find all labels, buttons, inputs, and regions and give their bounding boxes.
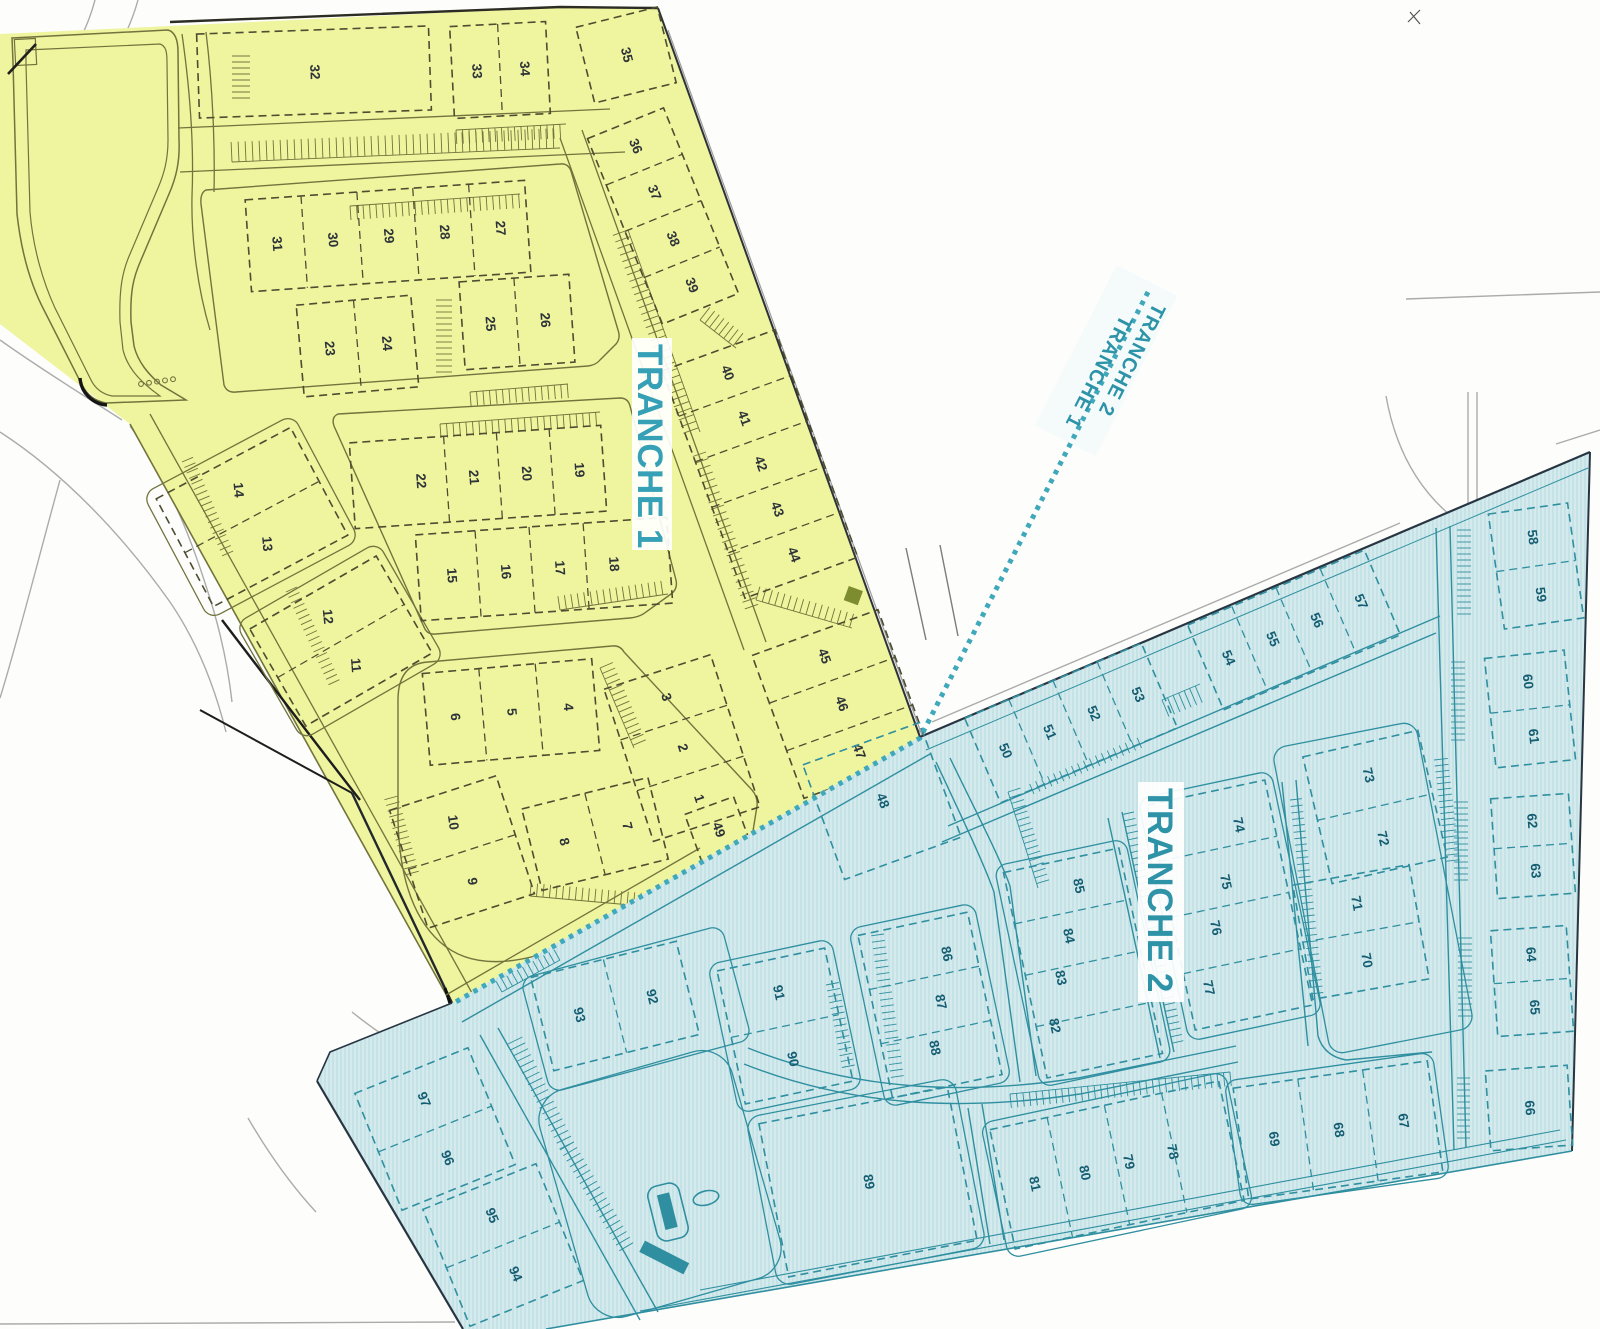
svg-text:71: 71 <box>1348 895 1365 913</box>
svg-text:70: 70 <box>1358 952 1375 969</box>
svg-text:18: 18 <box>606 556 622 573</box>
svg-text:13: 13 <box>259 536 275 553</box>
svg-text:26: 26 <box>537 312 553 329</box>
svg-text:60: 60 <box>1520 673 1536 690</box>
svg-text:89: 89 <box>860 1173 878 1191</box>
svg-text:68: 68 <box>1330 1121 1347 1138</box>
svg-text:30: 30 <box>325 232 341 248</box>
svg-text:82: 82 <box>1046 1017 1064 1035</box>
svg-text:TRANCHE 2: TRANCHE 2 <box>1140 788 1179 993</box>
svg-text:20: 20 <box>519 466 535 482</box>
svg-text:32: 32 <box>307 64 323 80</box>
svg-text:31: 31 <box>269 236 285 253</box>
svg-text:62: 62 <box>1524 813 1540 829</box>
svg-text:61: 61 <box>1526 728 1543 745</box>
svg-text:87: 87 <box>932 993 950 1011</box>
svg-text:79: 79 <box>1120 1153 1138 1171</box>
svg-text:69: 69 <box>1266 1130 1283 1147</box>
svg-text:77: 77 <box>1200 979 1218 997</box>
svg-text:34: 34 <box>517 61 533 77</box>
svg-text:15: 15 <box>444 567 460 584</box>
svg-text:11: 11 <box>348 657 364 673</box>
svg-text:14: 14 <box>230 482 246 499</box>
svg-text:24: 24 <box>379 335 395 352</box>
svg-text:16: 16 <box>498 564 514 581</box>
svg-text:21: 21 <box>466 469 482 486</box>
svg-text:22: 22 <box>413 473 429 489</box>
svg-text:66: 66 <box>1522 1100 1538 1117</box>
svg-text:29: 29 <box>381 228 397 244</box>
svg-text:19: 19 <box>571 462 587 478</box>
svg-text:33: 33 <box>469 63 485 79</box>
svg-text:28: 28 <box>437 224 453 241</box>
svg-text:65: 65 <box>1527 999 1543 1016</box>
svg-text:17: 17 <box>552 560 568 576</box>
svg-text:90: 90 <box>784 1050 802 1068</box>
svg-text:TRANCHE 1: TRANCHE 1 <box>630 344 669 549</box>
svg-text:25: 25 <box>482 316 498 333</box>
svg-text:67: 67 <box>1395 1112 1412 1129</box>
svg-text:23: 23 <box>322 340 338 357</box>
svg-text:64: 64 <box>1523 946 1539 963</box>
svg-text:27: 27 <box>493 220 509 236</box>
svg-text:80: 80 <box>1076 1164 1094 1182</box>
svg-text:63: 63 <box>1528 863 1544 880</box>
svg-text:58: 58 <box>1524 529 1541 546</box>
svg-text:59: 59 <box>1532 586 1549 603</box>
svg-text:10: 10 <box>445 814 462 831</box>
svg-text:12: 12 <box>320 609 336 625</box>
